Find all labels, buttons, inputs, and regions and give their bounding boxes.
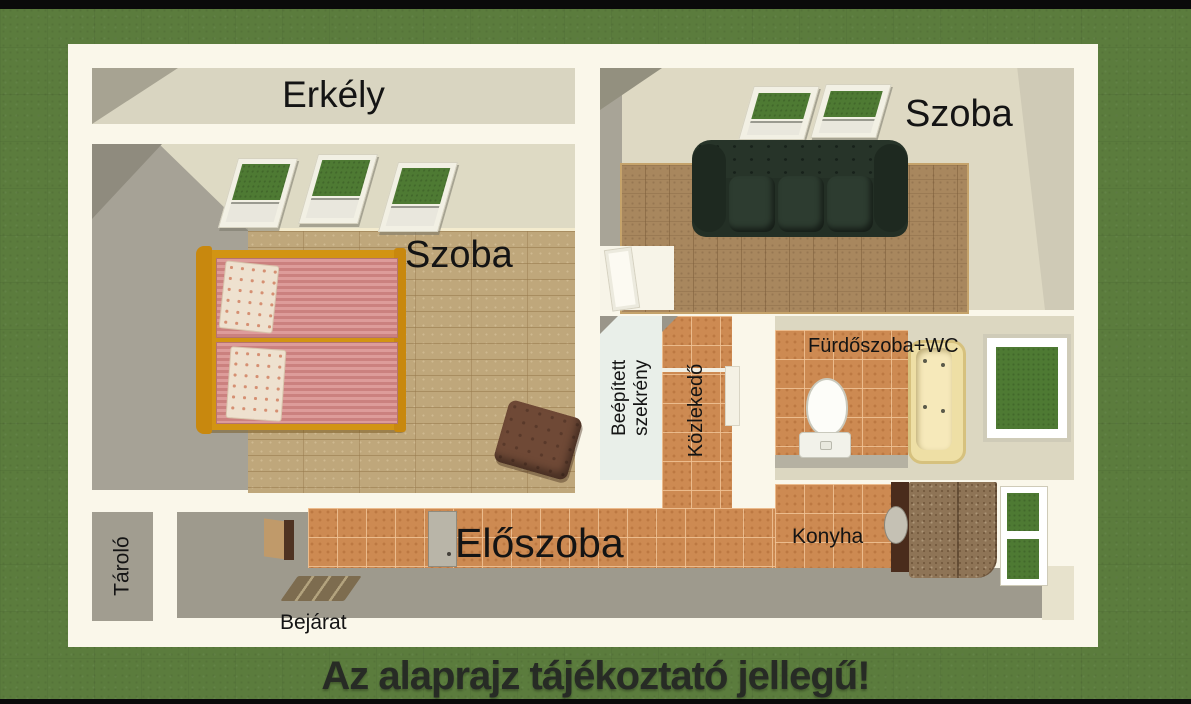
living-corner-shadow	[600, 68, 662, 110]
entrance-door	[284, 520, 294, 560]
bottom-letterbox-bar	[0, 699, 1191, 704]
disclaimer-banner: Az alaprajz tájékoztató jellegű!	[0, 655, 1191, 697]
bathroom-window-frame	[987, 338, 1067, 438]
door-handle	[447, 552, 451, 556]
floorplan-canvas: Erkély Szoba	[0, 0, 1191, 704]
counter-seam	[957, 482, 959, 578]
hall-label: Előszoba	[455, 522, 624, 565]
toilet-tank	[799, 432, 851, 458]
room-bathroom: Fürdőszoba+WC	[775, 316, 1074, 480]
hall-door	[428, 511, 457, 567]
kitchen-sink	[884, 506, 908, 544]
sofa-arm-left	[692, 144, 726, 232]
bathtub-jet	[923, 405, 927, 409]
storage-label-wrap: Tároló	[92, 512, 153, 621]
bathtub-jet	[923, 359, 927, 363]
skylight-window	[378, 162, 458, 232]
entrance-label: Bejárat	[280, 612, 347, 634]
bathtub-jet	[941, 363, 945, 367]
corridor-label-wrap: Közlekedő	[662, 330, 732, 490]
sofa-cushion	[729, 176, 775, 232]
skylight-window	[810, 84, 891, 138]
bed-headboard	[196, 246, 212, 434]
pillow	[219, 260, 280, 333]
kitchen-counter	[909, 482, 997, 578]
room-bedroom: Szoba	[92, 144, 575, 490]
sofa-arm-right	[874, 144, 908, 232]
skylight-window	[738, 86, 819, 140]
room-balcony: Erkély	[92, 68, 575, 124]
bed	[202, 250, 404, 430]
bathroom-label: Fürdőszoba+WC	[808, 336, 959, 357]
entrance-landing	[177, 512, 308, 618]
sofa-cushion	[827, 176, 873, 232]
balcony-label: Erkély	[92, 76, 575, 115]
bathtub-jet	[941, 409, 945, 413]
toilet-flush-button	[820, 441, 832, 450]
bathtub-basin	[916, 348, 952, 450]
living-label: Szoba	[905, 95, 1013, 135]
kitchen-label: Konyha	[792, 526, 863, 548]
top-letterbox-bar	[0, 0, 1191, 9]
wardrobe-label-line2: szekrény	[631, 360, 653, 436]
sofa	[692, 140, 908, 237]
toilet	[806, 378, 848, 436]
living-east-wall	[1008, 68, 1074, 310]
storage-label: Tároló	[110, 537, 134, 597]
corridor-label: Közlekedő	[686, 363, 709, 456]
bedroom-label: Szoba	[405, 236, 513, 276]
room-living: Szoba	[600, 68, 1074, 310]
pillow	[226, 346, 287, 422]
sofa-cushion	[778, 176, 824, 232]
skylight-window	[218, 158, 298, 228]
skylight-window	[298, 154, 378, 224]
bathtub	[908, 340, 966, 464]
wardrobe-label-line1: Beépített	[609, 360, 631, 436]
kitchen-window	[1000, 486, 1048, 586]
bathroom-window	[983, 334, 1071, 442]
